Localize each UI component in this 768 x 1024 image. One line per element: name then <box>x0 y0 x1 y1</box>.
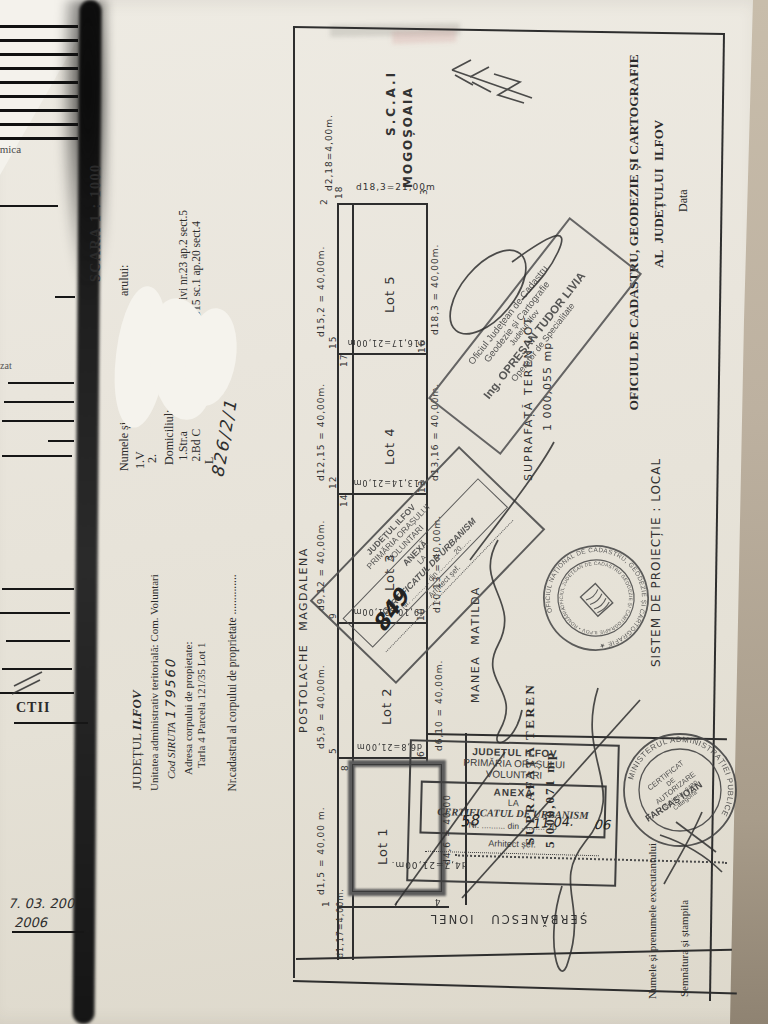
point-7: 7 <box>391 899 401 908</box>
underpage-fragment: rmica <box>0 143 21 155</box>
scale-label: SCARA 1 : 1000 <box>89 163 103 282</box>
date-underline <box>12 931 84 933</box>
binding-mark-group <box>0 14 78 142</box>
owner-row-2: 2. <box>146 454 158 463</box>
cadastre-stamp-outer-ring-text: OFICIUL NAȚIONAL DE CADASTRU, GEODEZIE Ș… <box>540 542 652 654</box>
lot5-label: Lot 5 <box>383 276 396 313</box>
handwritten-date-2: 2006 <box>14 915 47 930</box>
binding-mark <box>4 401 74 403</box>
binding-mark <box>55 296 75 298</box>
dim-d6-10: d6,10 = 40,00m. <box>435 660 444 751</box>
executor-label: Numele și prenumele executantului <box>647 843 658 999</box>
stamp-nr-line: Nr. .......... din .......... 20 58 11.0… <box>422 819 604 834</box>
point-2: 2 <box>320 198 329 205</box>
north-neighbor-line1: S.C.A.I <box>385 70 397 136</box>
nr-dots: .......... <box>482 820 506 831</box>
dim-d5-9: d5,9 = 40,00m. <box>317 664 326 749</box>
office-title-line2: AL JUDEȚULUI ILFOV <box>652 120 665 268</box>
office-title-line1: OFICIUL DE CADASTRU, GEODEZIE ȘI CARTOGR… <box>627 54 641 410</box>
point-8: 8 <box>341 764 350 771</box>
handwritten-date: 11.04. <box>531 814 573 831</box>
binding-mark <box>2 420 74 422</box>
binding-mark <box>0 205 58 207</box>
domicile-label: Domiciliul: <box>163 410 175 465</box>
siruta-label: Cod SIRUTA <box>165 720 177 780</box>
frame-left <box>293 26 295 978</box>
south-neighbor: ȘERBĂNESCU IONEL <box>383 912 633 924</box>
west-neighbor: POSTOLACHE MAGDALENA <box>298 547 309 733</box>
binding-mark <box>0 692 74 694</box>
binding-mark <box>6 640 70 642</box>
faint-red-stamp-ghost <box>392 29 456 44</box>
point-17: 17 <box>340 354 349 367</box>
binding-mark <box>0 612 70 614</box>
binding-mark <box>2 455 72 457</box>
ministry-round-stamp: MINISTERUL ADMINISTRAȚIEI PUBLICE CERTIF… <box>620 730 740 850</box>
owner-label-end: arului: <box>118 265 130 296</box>
scanned-cadastral-plan-photo: rmica zat CTII 7. 03. 200 2006 SCARA 1 :… <box>0 0 768 1024</box>
point-3: 3 <box>420 188 429 195</box>
date-label: Data <box>677 189 689 212</box>
dim-d16-17: d16,17=21,00m <box>353 338 425 346</box>
cadastral-dots: .............. <box>226 574 238 614</box>
ctii-underline <box>14 722 88 724</box>
admin-unit-line: Unitatea administrativ teritorială: Com.… <box>149 574 160 791</box>
owner-label-start: Numele și <box>118 422 130 471</box>
stamp-sign-label: Arhitect șef. <box>409 836 615 851</box>
cadastral-line: Nr.cadastral al corpului de proprietate … <box>227 574 239 791</box>
svg-text:OFICIUL NAȚIONAL DE CADASTRU,: OFICIUL NAȚIONAL DE CADASTRU, GEODEZIE Ș… <box>540 542 652 654</box>
point-15: 15 <box>329 336 338 349</box>
handwritten-date-1: 7. 03. 200 <box>8 896 74 911</box>
county-line: JUDEȚUL ILFOV <box>130 690 143 790</box>
handwritten-year: 06 <box>594 817 611 832</box>
cadastre-stamp-emblem <box>580 584 612 617</box>
address-label-line: Adresa corpului de propietate: <box>183 642 194 775</box>
dim-d13-14: d13,14=21,0m <box>353 478 425 486</box>
binding-mark <box>2 668 72 670</box>
lot-divider <box>337 353 427 355</box>
dim-d18-3-right: d18,3 = 40,00m. <box>431 244 440 335</box>
cadastre-round-stamp: OFICIUL NAȚIONAL DE CADASTRU, GEODEZIE Ș… <box>540 542 652 654</box>
siruta-value: 179560 <box>163 658 178 720</box>
point-1: 1 <box>322 900 331 907</box>
point-12: 12 <box>329 476 338 489</box>
binding-mark <box>8 382 74 384</box>
stamp-inner-box: ANEXĂ LA CERTIFICATUL DE URBANISM Nr. ..… <box>419 781 606 839</box>
address-value-line: Tarla 4 Parcela 121/35 Lot 1 <box>196 643 207 768</box>
point-18: 18 <box>335 186 344 199</box>
binding-mark <box>2 588 74 590</box>
address1-end: ovivi nr.23 ap.2 sect.5 <box>178 210 190 312</box>
point-4: 4 <box>432 897 442 906</box>
point-5: 5 <box>329 747 338 754</box>
lot2-label: Lot 2 <box>380 688 393 725</box>
cadastral-label: Nr.cadastral al corpului de proprietate <box>226 615 238 792</box>
address2-start: 2.Bd C <box>191 429 203 462</box>
county-label: JUDEȚUL <box>129 730 144 790</box>
point-14: 14 <box>340 494 349 507</box>
ctii-label: CTII <box>16 700 50 716</box>
dim-d2-18: d2,18=4,00m. <box>325 114 334 191</box>
dim-d1-17: d1,17=4,00m. <box>337 888 345 958</box>
county-value: ILFOV <box>129 690 144 730</box>
dim-d15-2: d15,2 = 40,00m. <box>317 246 326 337</box>
din-label: din <box>508 821 520 831</box>
north-neighbor-line2: MOGOȘOAIA <box>402 86 414 188</box>
dim-d1-5: d1,5 = 40,00 m. <box>317 806 326 895</box>
address1-start: 1.Str.a <box>178 431 190 460</box>
binding-mark <box>48 440 74 442</box>
siruta-line: Cod SIRUTA 179560 <box>164 658 177 779</box>
signature-stamp-label: Semnătura și ștampila <box>679 900 690 997</box>
lot4-label: Lot 4 <box>383 428 396 465</box>
anexa-urbanism-stamp-bottom: JUDEȚUL ILFOV PRIMĂRIA ORAȘULUI VOLUNTAR… <box>406 739 620 886</box>
strip-top-edge <box>337 203 427 205</box>
handwritten-nr: 58 <box>459 811 479 830</box>
underpage-fragment: zat <box>0 360 12 371</box>
point-16: 16 <box>418 340 427 353</box>
stamp-dotted-row <box>425 851 599 857</box>
dim-d12-15: d12,15 = 40,00m. <box>317 383 326 481</box>
